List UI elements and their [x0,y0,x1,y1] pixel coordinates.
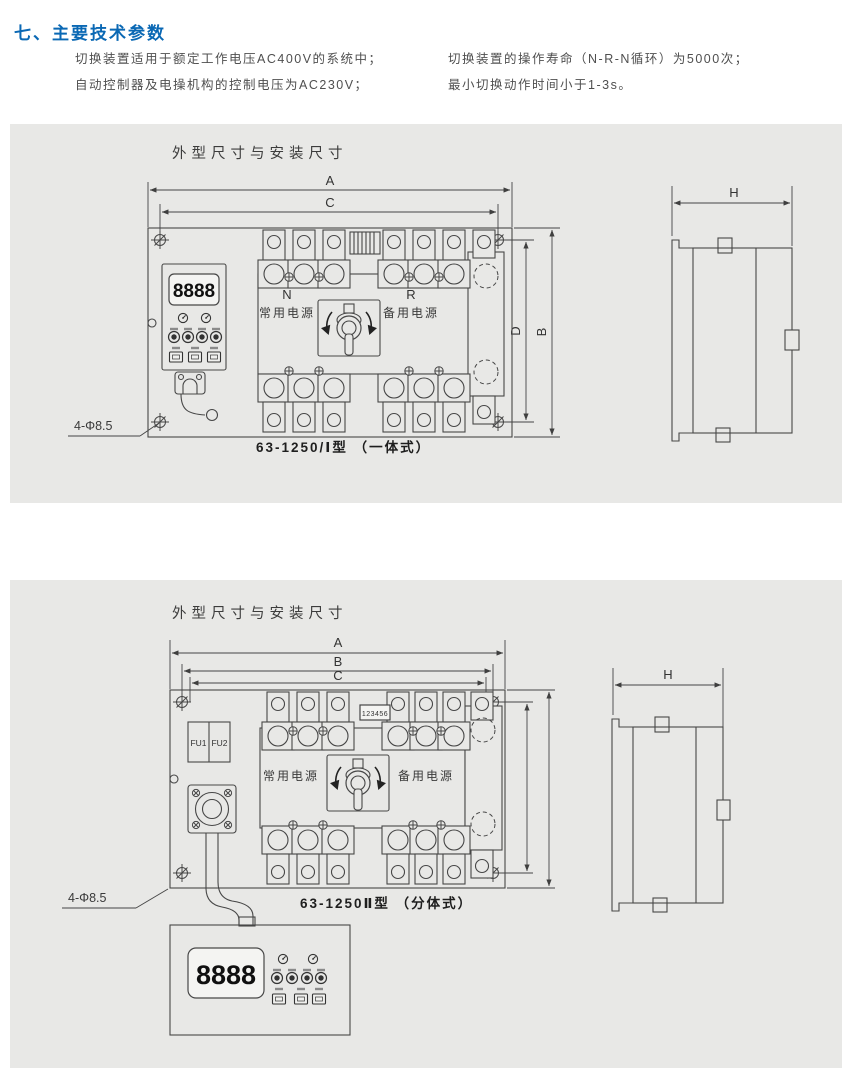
round-button [302,973,313,984]
model-caption-split: 63-1250Ⅱ型 （分体式） [300,892,473,912]
drawing-title: 外型尺寸与安装尺寸 [172,602,348,623]
technical-drawing-split: A B C FU [10,580,842,1068]
dim-label-c: C [333,668,342,683]
label-normal-power: 常用电源 [263,769,319,783]
label-fu1: FU1 [190,738,206,748]
panel-integrated-type: A C D B [10,124,842,503]
indicator-lamp [308,954,317,963]
controller-wire [181,394,205,415]
display-value: 8888 [196,960,256,990]
label-backup-power: 备用电源 [383,306,439,320]
hole-note-text: 4-Φ8.5 [74,419,113,433]
round-button [272,973,283,984]
terminal-block: 123456 [360,705,390,720]
dimension-lines-top: A C [148,173,512,234]
controller-unit: 8888 [162,264,226,421]
control-cable [206,833,239,926]
intro-line: 切换装置适用于额定工作电压AC400V的系统中； [75,51,440,68]
round-button [211,332,222,343]
rotary-handle [327,755,389,811]
dim-label-b: B [334,654,343,669]
round-button [316,973,327,984]
fuse-box: FU1 FU2 [188,722,230,762]
intro-paragraph-right: 切换装置的操作寿命（N-R-N循环）为5000次； 最小切换动作时间小于1-3s… [448,51,844,103]
dim-label-b: B [534,328,549,337]
dim-label-d: D [508,326,523,335]
intro-line: 自动控制器及电操机构的控制电压为AC230V； [75,77,440,94]
label-normal-power: 常用电源 [259,306,315,320]
page-title: 七、主要技术参数 [14,19,166,44]
square-button [295,994,308,1004]
dim-label-a: A [334,635,343,650]
mounting-bracket [672,240,693,441]
label-backup-power: 备用电源 [398,769,454,783]
intro-line: 最小切换动作时间小于1-3s。 [448,77,844,94]
square-button [189,352,202,362]
panel-split-type: A B C FU [10,580,842,1068]
dimension-lines-right [499,690,555,888]
hole-note-text: 4-Φ8.5 [68,891,107,905]
model-caption-integrated: 63-1250/Ⅰ型 （一体式） [256,436,431,456]
dim-label-c: C [325,195,334,210]
hole-diameter-note: 4-Φ8.5 [62,889,168,908]
controller-connector [175,372,218,421]
dim-label-a: A [326,173,335,188]
vent-hatch [350,232,380,254]
main-switch-body: N 常用电源 R 备用电源 [258,230,504,432]
mounting-bracket [612,719,633,911]
label-r: R [406,287,415,302]
round-button [197,332,208,343]
intro-paragraph-left: 切换装置适用于额定工作电压AC400V的系统中； 自动控制器及电操机构的控制电压… [75,51,440,103]
side-view: H [672,185,799,442]
indicator-lamp [278,954,287,963]
square-button [313,994,326,1004]
rotary-handle [318,300,380,356]
round-button [169,332,180,343]
square-button [208,352,221,362]
terminal-block-numbers: 123456 [362,711,388,718]
round-button [287,973,298,984]
square-button [170,352,183,362]
indicator-lamp [201,313,210,322]
label-fu2: FU2 [211,738,227,748]
dim-label-h: H [729,185,738,200]
drawing-title: 外型尺寸与安装尺寸 [172,142,348,163]
square-button [273,994,286,1004]
label-n: N [282,287,291,302]
dim-label-h: H [663,667,672,682]
side-view: H [612,667,730,912]
main-switch-body: 123456 常用电源 备用电源 [260,692,502,884]
hole-diameter-note: 4-Φ8.5 [68,419,159,436]
round-button [183,332,194,343]
motor-connector [188,785,253,926]
display-value: 8888 [173,281,215,302]
indicator-lamp [178,313,187,322]
intro-line: 切换装置的操作寿命（N-R-N循环）为5000次； [448,51,844,68]
manual-page: { "page": { "heading": "七、主要技术参数", "intr… [0,0,852,1090]
external-controller: 8888 [170,917,350,1035]
